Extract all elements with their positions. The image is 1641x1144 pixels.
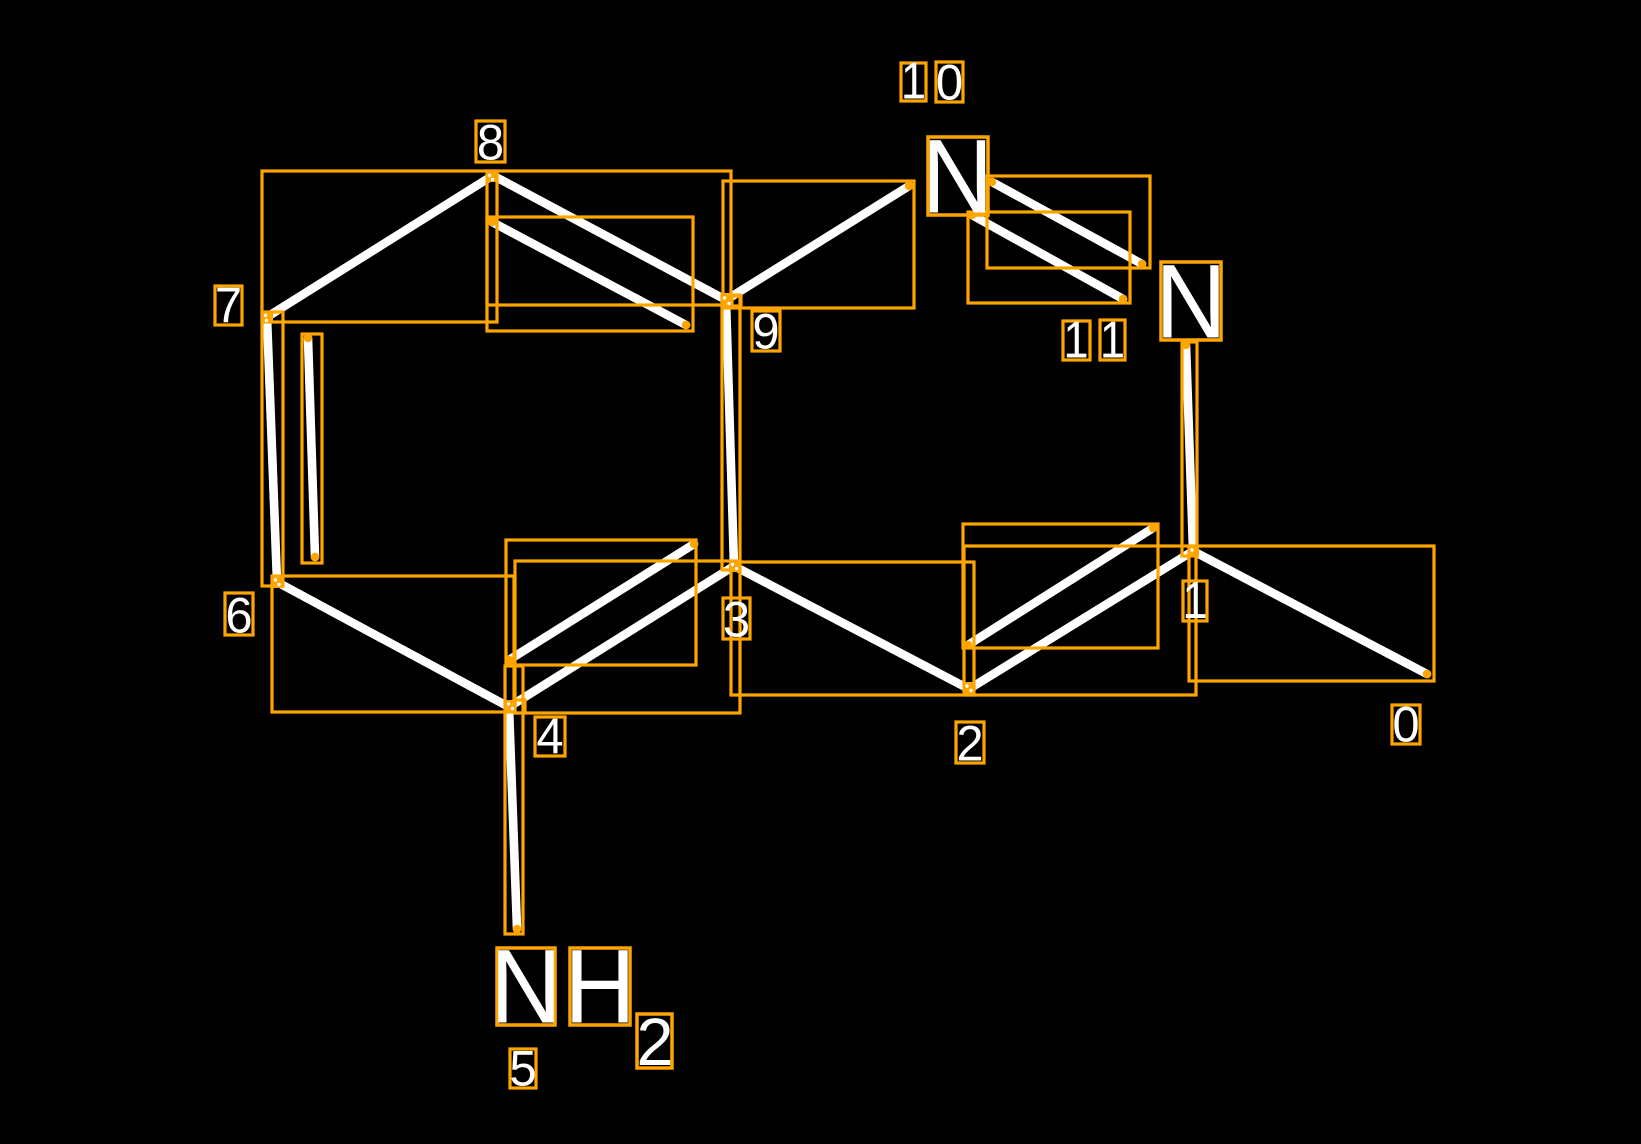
svg-text:2: 2 <box>636 1005 673 1080</box>
svg-text:1: 1 <box>1182 572 1207 629</box>
svg-text:3: 3 <box>723 592 750 648</box>
svg-text:1: 1 <box>1100 312 1125 369</box>
svg-text:N: N <box>490 928 562 1045</box>
svg-text:0: 0 <box>936 55 963 111</box>
svg-text:N: N <box>922 118 994 235</box>
svg-text:8: 8 <box>477 115 504 171</box>
svg-text:7: 7 <box>215 278 242 334</box>
svg-text:5: 5 <box>509 1041 536 1097</box>
svg-text:4: 4 <box>536 709 563 765</box>
svg-text:9: 9 <box>752 304 779 360</box>
svg-text:2: 2 <box>956 716 983 772</box>
svg-text:H: H <box>564 928 636 1045</box>
svg-text:1: 1 <box>901 53 926 110</box>
svg-text:6: 6 <box>225 588 252 644</box>
svg-text:N: N <box>1155 243 1227 360</box>
svg-text:1: 1 <box>1063 312 1088 369</box>
svg-text:0: 0 <box>1392 697 1419 753</box>
